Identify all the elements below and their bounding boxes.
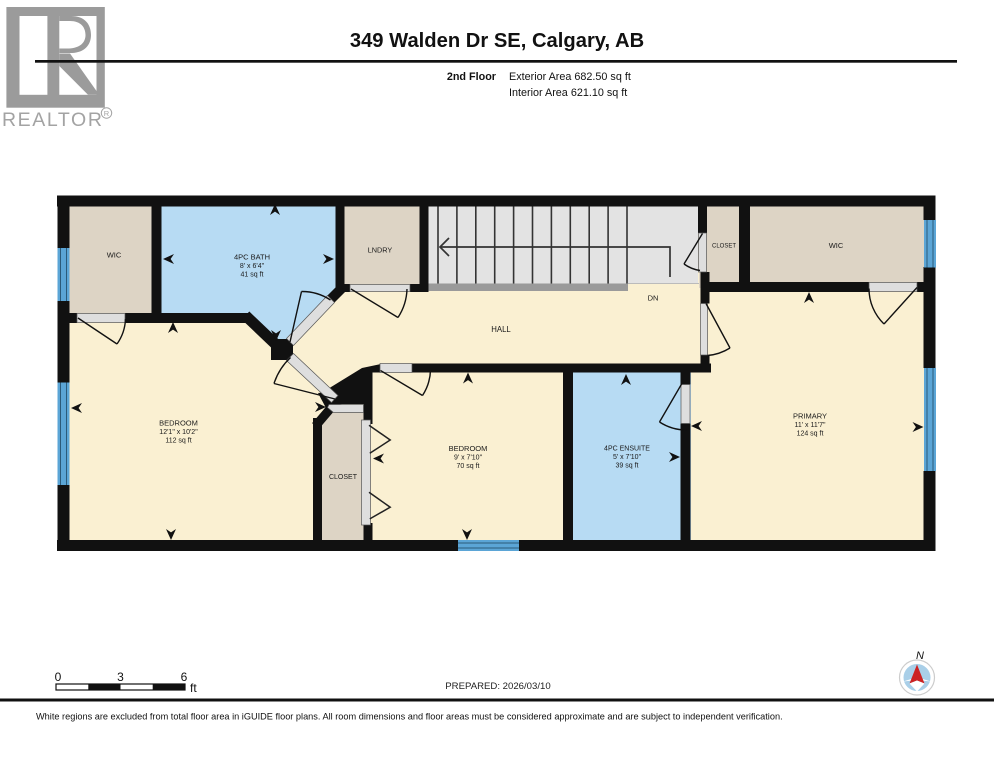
svg-text:Exterior Area 682.50 sq ft: Exterior Area 682.50 sq ft	[509, 71, 631, 83]
svg-text:CLOSET: CLOSET	[712, 244, 736, 250]
svg-text:LNDRY: LNDRY	[368, 246, 393, 255]
svg-text:124 sq ft: 124 sq ft	[797, 431, 824, 438]
svg-text:4PC BATH: 4PC BATH	[234, 253, 270, 262]
svg-text:11' x 11'7": 11' x 11'7"	[795, 422, 826, 429]
svg-text:3: 3	[117, 670, 124, 684]
svg-text:9' x 7'10": 9' x 7'10"	[454, 455, 483, 462]
svg-text:WIC: WIC	[829, 241, 844, 250]
svg-text:REALTOR: REALTOR	[2, 109, 104, 131]
svg-text:BEDROOM: BEDROOM	[449, 444, 488, 453]
svg-text:WIC: WIC	[107, 251, 122, 260]
svg-text:0: 0	[55, 670, 62, 684]
svg-text:White regions are excluded fro: White regions are excluded from total fl…	[36, 712, 783, 722]
svg-text:8' x 6'4": 8' x 6'4"	[240, 263, 265, 270]
svg-text:12'1" x 10'2": 12'1" x 10'2"	[159, 429, 198, 436]
svg-text:CLOSET: CLOSET	[329, 474, 358, 481]
svg-text:HALL: HALL	[491, 325, 511, 334]
svg-text:70 sq ft: 70 sq ft	[457, 463, 480, 470]
svg-text:39 sq ft: 39 sq ft	[616, 463, 639, 470]
svg-text:N: N	[916, 650, 924, 662]
svg-text:5' x 7'10": 5' x 7'10"	[613, 454, 642, 461]
svg-text:ft: ft	[190, 681, 197, 695]
svg-text:4PC ENSUITE: 4PC ENSUITE	[604, 446, 650, 453]
svg-text:112 sq ft: 112 sq ft	[165, 438, 191, 445]
svg-text:2nd Floor: 2nd Floor	[447, 71, 497, 83]
svg-text:R: R	[104, 109, 110, 118]
svg-text:BEDROOM: BEDROOM	[159, 419, 198, 428]
svg-text:PRIMARY: PRIMARY	[793, 412, 827, 421]
svg-text:PREPARED: 2026/03/10: PREPARED: 2026/03/10	[445, 681, 550, 692]
svg-text:Interior Area 621.10 sq ft: Interior Area 621.10 sq ft	[509, 87, 627, 99]
svg-text:41 sq ft: 41 sq ft	[241, 272, 264, 279]
svg-text:DN: DN	[648, 294, 659, 303]
svg-text:349 Walden Dr SE, Calgary, AB: 349 Walden Dr SE, Calgary, AB	[350, 30, 644, 52]
svg-text:6: 6	[181, 670, 188, 684]
